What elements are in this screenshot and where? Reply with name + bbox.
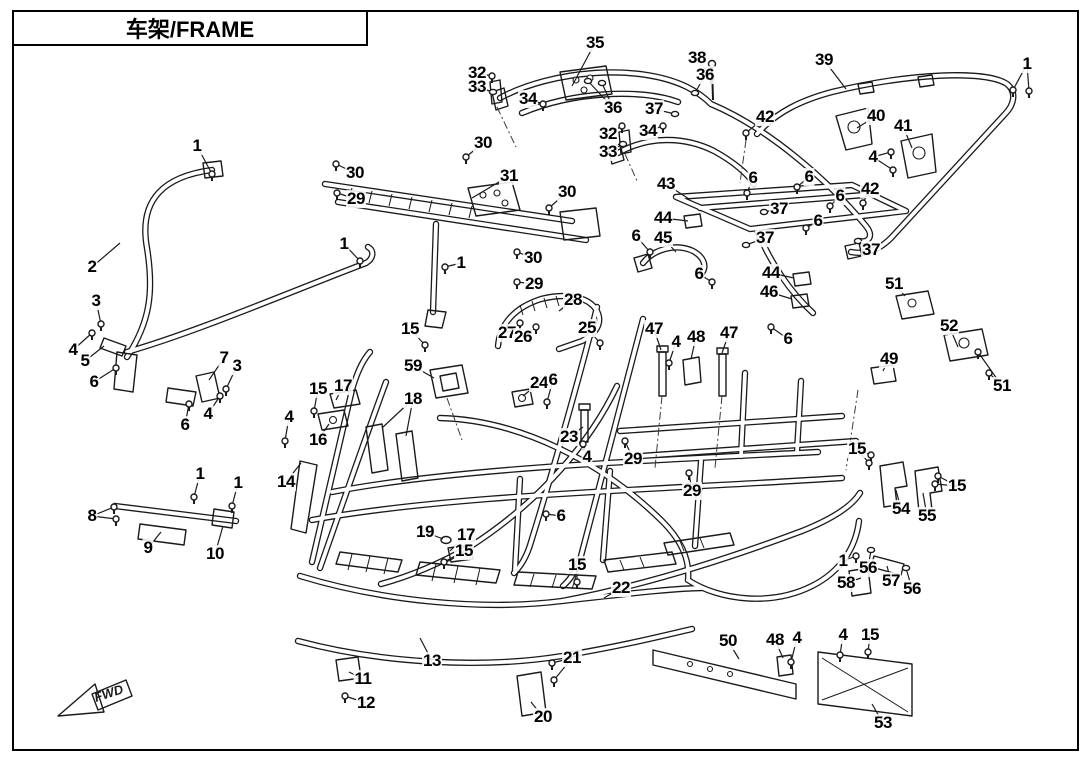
callout-15: 15 [454,542,474,560]
callout-4: 4 [868,148,879,166]
callout-1: 1 [233,474,244,492]
callout-2: 2 [87,258,98,276]
callout-3: 3 [232,357,243,375]
callout-22: 22 [611,579,631,597]
callout-54: 54 [891,500,911,518]
callout-6: 6 [631,227,642,245]
callout-25: 25 [577,319,597,337]
callout-6: 6 [783,330,794,348]
callout-6: 6 [556,507,567,525]
callout-45: 45 [653,229,673,247]
callout-48: 48 [765,631,785,649]
callout-11: 11 [354,670,373,688]
callout-52: 52 [939,317,959,335]
callout-15: 15 [308,380,328,398]
callout-39: 39 [814,51,834,69]
callout-24: 24 [529,374,549,392]
callout-15: 15 [400,320,420,338]
callout-20: 20 [533,708,553,726]
callout-6: 6 [180,416,191,434]
callout-13: 13 [422,652,442,670]
callout-6: 6 [835,187,846,205]
callout-7: 7 [219,349,230,367]
callout-4: 4 [838,626,849,644]
callout-4: 4 [671,333,682,351]
callout-30: 30 [557,183,577,201]
callout-53: 53 [873,714,893,732]
callout-15: 15 [847,440,867,458]
callout-42: 42 [755,108,775,126]
callout-17: 17 [333,377,353,395]
callout-1: 1 [339,235,350,253]
callout-58: 58 [836,574,856,592]
callout-32: 32 [598,125,618,143]
callout-19: 19 [415,523,435,541]
callout-49: 49 [879,350,899,368]
callout-56: 56 [902,580,922,598]
callout-46: 46 [759,283,779,301]
callout-1: 1 [195,465,206,483]
callout-1: 1 [192,137,203,155]
callout-36: 36 [603,99,623,117]
callout-18: 18 [403,390,423,408]
callout-1: 1 [456,254,467,272]
callout-37: 37 [755,229,775,247]
callout-4: 4 [68,341,79,359]
callout-43: 43 [656,175,676,193]
callout-29: 29 [682,482,702,500]
callout-15: 15 [860,626,880,644]
callout-57: 57 [881,572,901,590]
callout-6: 6 [548,371,559,389]
callout-14: 14 [276,473,296,491]
callout-15: 15 [567,556,587,574]
callout-28: 28 [563,291,583,309]
callout-36: 36 [695,66,715,84]
callout-23: 23 [559,428,579,446]
callout-1: 1 [838,552,849,570]
callout-6: 6 [89,373,100,391]
callout-59: 59 [403,357,423,375]
callout-44: 44 [761,264,781,282]
diagram-page: 车架/FRAME [0,0,1090,760]
callout-33: 33 [467,78,487,96]
callout-4: 4 [203,405,214,423]
callout-37: 37 [861,241,881,259]
callout-15: 15 [947,477,967,495]
callout-51: 51 [992,377,1012,395]
callout-29: 29 [623,450,643,468]
callout-8: 8 [87,507,98,525]
callout-10: 10 [205,545,225,563]
callout-3: 3 [91,292,102,310]
callout-40: 40 [866,107,886,125]
callout-30: 30 [345,164,365,182]
callout-31: 31 [499,167,519,185]
callout-47: 47 [644,320,664,338]
callout-55: 55 [917,507,937,525]
callout-44: 44 [653,209,673,227]
callout-6: 6 [694,265,705,283]
callout-35: 35 [585,34,605,52]
callout-4: 4 [284,408,295,426]
callout-6: 6 [804,168,815,186]
callout-47: 47 [719,324,739,342]
callout-33: 33 [598,143,618,161]
callout-34: 34 [518,90,538,108]
callout-5: 5 [80,352,91,370]
callout-41: 41 [893,117,913,135]
callout-34: 34 [638,122,658,140]
callout-30: 30 [473,134,493,152]
callout-6: 6 [748,169,759,187]
callout-30: 30 [523,249,543,267]
callout-50: 50 [718,632,738,650]
callout-16: 16 [308,431,328,449]
callout-48: 48 [686,328,706,346]
callout-29: 29 [346,190,366,208]
callout-37: 37 [769,200,789,218]
callout-21: 21 [562,649,582,667]
callout-12: 12 [356,694,376,712]
callout-26: 26 [513,328,533,346]
callout-6: 6 [813,212,824,230]
callout-4: 4 [582,448,593,466]
callout-51: 51 [884,275,904,293]
callout-9: 9 [143,539,154,557]
callout-56: 56 [858,559,878,577]
callout-1: 1 [1022,55,1033,73]
callout-29: 29 [524,275,544,293]
callout-42: 42 [860,180,880,198]
callout-37: 37 [644,100,664,118]
callout-4: 4 [792,629,803,647]
